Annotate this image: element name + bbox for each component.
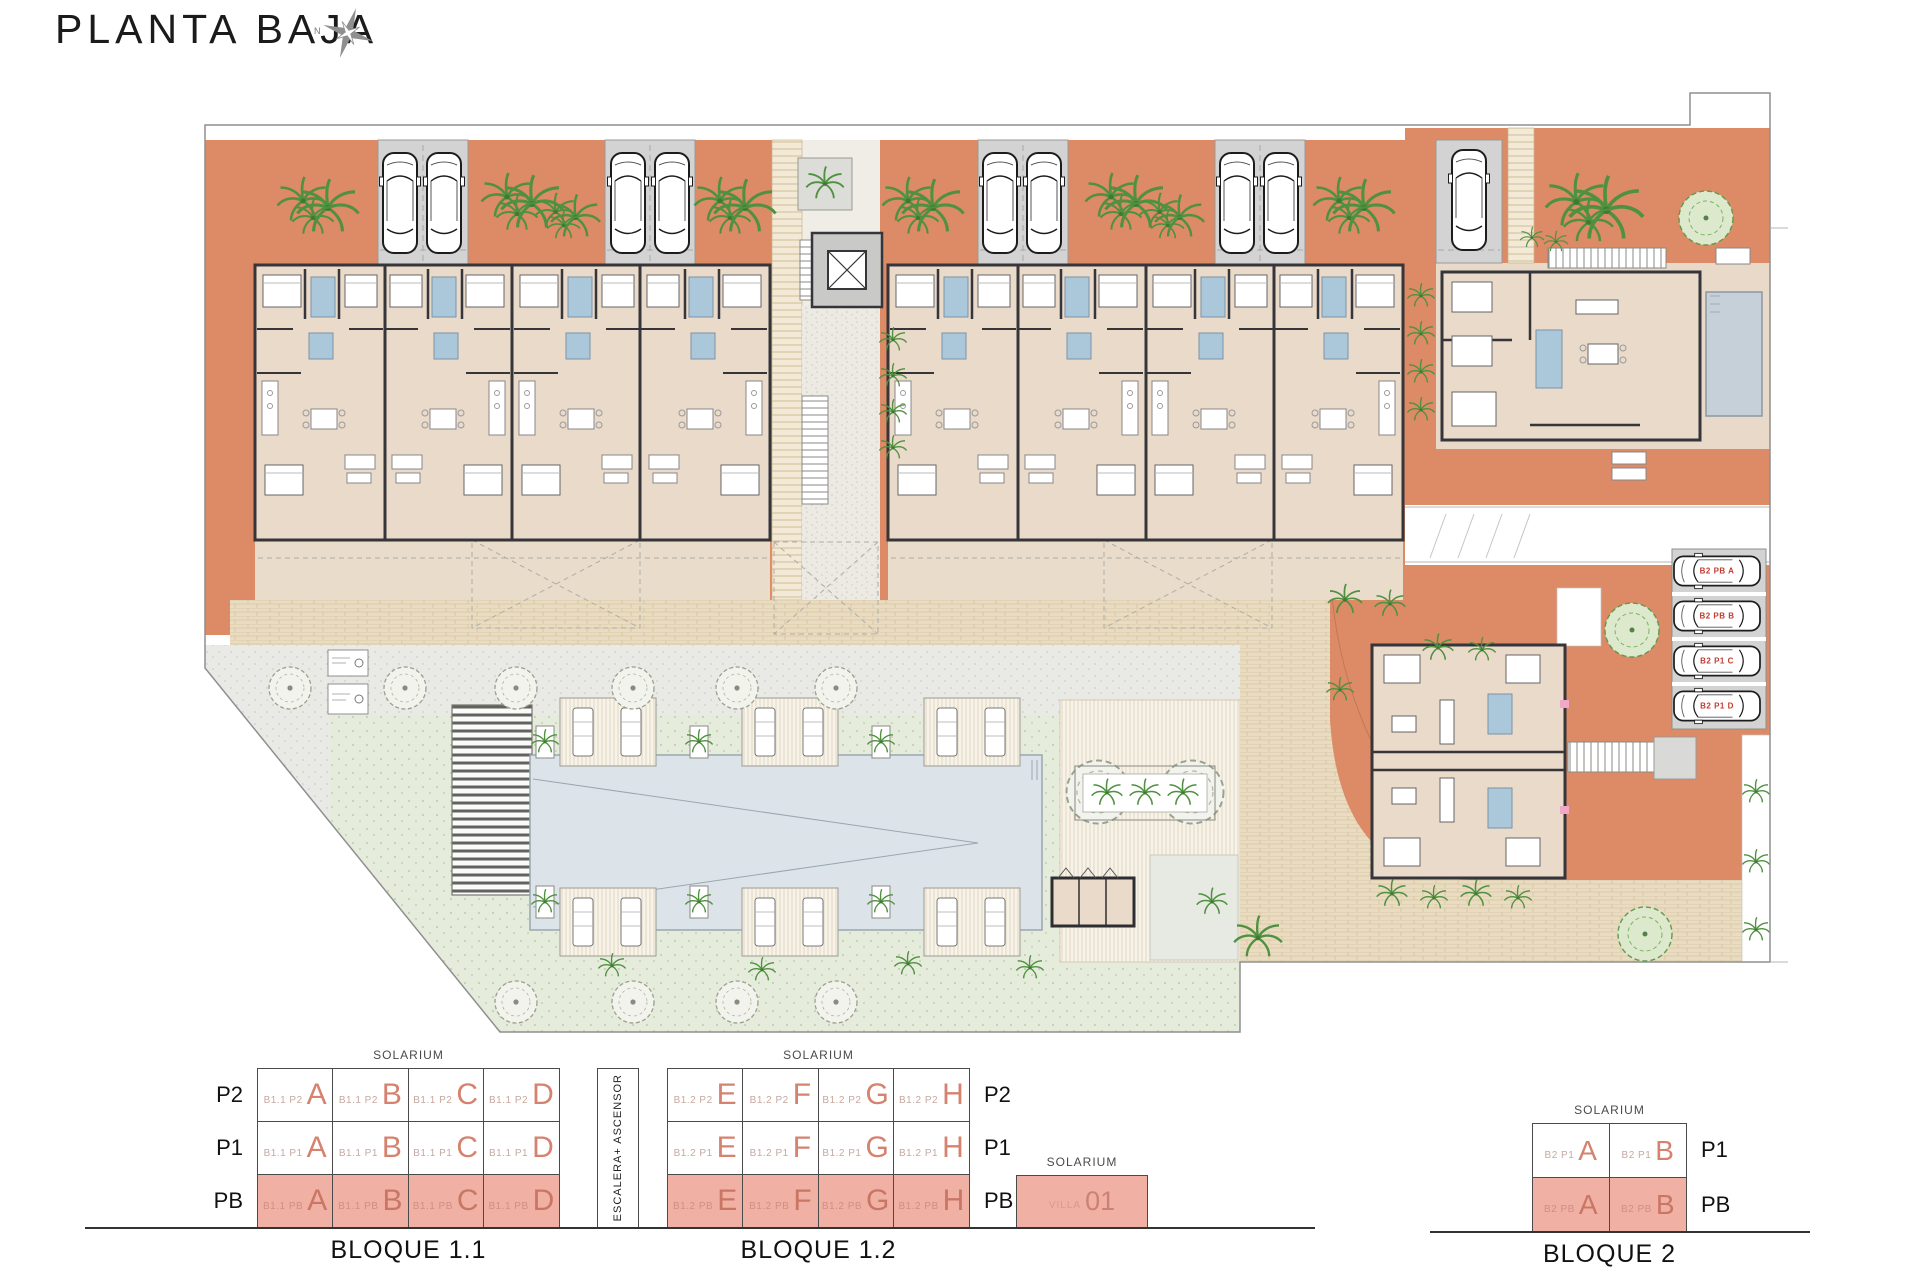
bloque12-grid: B1.2 P2EB1.2 P2FB1.2 P2GB1.2 P2HB1.2 P1E… — [667, 1068, 970, 1228]
bloque2-floor-label-PB: PB — [1701, 1192, 1747, 1218]
unit-code: B1.1 P2 — [264, 1095, 303, 1106]
unit-code: B1.1 PB — [263, 1201, 303, 1212]
unit-letter: A — [1578, 1135, 1597, 1167]
bloque11-floor-label-P2: P2 — [197, 1082, 243, 1108]
unit-code: B1.2 P2 — [899, 1095, 938, 1106]
unit-cell-bloque12-P1-G: B1.2 P1G — [819, 1122, 894, 1175]
unit-code: B1.2 PB — [898, 1201, 938, 1212]
unit-letter: D — [533, 1184, 555, 1218]
unit-cell-bloque12-P1-H: B1.2 P1H — [894, 1122, 969, 1175]
unit-code: B1.1 P1 — [264, 1148, 303, 1159]
unit-cell-bloque12-P2-G: B1.2 P2G — [819, 1069, 894, 1122]
unit-code: B2 PB — [1621, 1204, 1652, 1215]
unit-letter: B — [1656, 1189, 1675, 1221]
plan-canvas: PLANTA BAJA N — [0, 0, 1920, 1280]
bloque2-floor-label-P1: P1 — [1701, 1137, 1747, 1163]
unit-cell-bloque11-PB-D: B1.1 PBD — [484, 1175, 559, 1227]
unit-cell-bloque11-P1-D: B1.1 P1D — [484, 1122, 559, 1175]
unit-code: B1.2 P2 — [750, 1095, 789, 1106]
unit-code: B1.1 P1 — [339, 1148, 378, 1159]
unit-code: B1.1 P1 — [413, 1148, 452, 1159]
unit-letter: F — [793, 1078, 811, 1112]
unit-letter: B — [382, 1184, 402, 1218]
wc-building — [1052, 878, 1134, 926]
unit-letter: E — [717, 1131, 737, 1165]
unit-cell-bloque12-P1-F: B1.2 P1F — [743, 1122, 818, 1175]
unit-letter: A — [1579, 1189, 1598, 1221]
unit-letter: A — [307, 1078, 327, 1112]
unit-code: B1.1 P2 — [489, 1095, 528, 1106]
building-bloque12 — [888, 265, 1403, 540]
unit-letter: C — [457, 1184, 479, 1218]
unit-letter: D — [532, 1078, 554, 1112]
villa-number: 01 — [1085, 1186, 1115, 1217]
unit-code: B1.2 P1 — [674, 1148, 713, 1159]
unit-code: B1.2 P1 — [899, 1148, 938, 1159]
unit-cell-bloque12-PB-E: B1.2 PBE — [668, 1175, 743, 1227]
unit-cell-bloque2-PB-A: B2 PBA — [1533, 1178, 1610, 1231]
pergola — [452, 705, 532, 895]
unit-code: B1.2 P1 — [750, 1148, 789, 1159]
bloque2-title: BLOQUE 2 — [1543, 1240, 1676, 1269]
unit-cell-bloque12-P1-E: B1.2 P1E — [668, 1122, 743, 1175]
bloque12-floor-label-P1: P1 — [984, 1135, 1030, 1161]
unit-letter: G — [866, 1078, 889, 1112]
ground-line-1 — [1430, 1231, 1810, 1233]
unit-cell-bloque11-P1-C: B1.1 P1C — [409, 1122, 484, 1175]
unit-cell-bloque11-P2-D: B1.1 P2D — [484, 1069, 559, 1122]
villa-solarium-label: SOLARIUM — [1047, 1155, 1118, 1169]
unit-code: B1.2 P2 — [674, 1095, 713, 1106]
unit-letter: H — [942, 1131, 964, 1165]
unit-letter: C — [456, 1131, 478, 1165]
compass-icon — [315, 0, 381, 66]
unit-cell-bloque11-P2-B: B1.1 P2B — [333, 1069, 408, 1122]
unit-letter: B — [382, 1131, 402, 1165]
unit-code: B1.2 PB — [749, 1201, 789, 1212]
unit-code: B1.1 PB — [488, 1201, 528, 1212]
unit-cell-bloque12-P2-H: B1.2 P2H — [894, 1069, 969, 1122]
long-stair — [802, 396, 828, 504]
unit-code: B1.1 P2 — [413, 1095, 452, 1106]
unit-letter: A — [307, 1131, 327, 1165]
unit-letter: H — [943, 1184, 965, 1218]
unit-letter: C — [456, 1078, 478, 1112]
unit-cell-bloque2-P1-A: B2 P1A — [1533, 1124, 1610, 1178]
bloque12-floor-label-P2: P2 — [984, 1082, 1030, 1108]
bloque11-floor-label-P1: P1 — [197, 1135, 243, 1161]
parking-space-label-2: B2 P1 C — [1700, 657, 1734, 666]
unit-letter: G — [866, 1184, 889, 1218]
parking-space-label-0: B2 PB A — [1700, 567, 1735, 576]
unit-letter: F — [793, 1131, 811, 1165]
unit-cell-bloque12-P2-E: B1.2 P2E — [668, 1069, 743, 1122]
unit-letter: A — [307, 1184, 327, 1218]
ground-line-0 — [85, 1227, 1315, 1229]
unit-code: B1.2 P1 — [822, 1148, 861, 1159]
unit-code: B1.1 PB — [338, 1201, 378, 1212]
unit-cell-bloque11-P2-A: B1.1 P2A — [258, 1069, 333, 1122]
escalera-box: ESCALERA+ ASCENSOR — [597, 1068, 639, 1228]
bloque2-solarium-label: SOLARIUM — [1574, 1103, 1645, 1117]
unit-letter: F — [793, 1184, 811, 1218]
unit-letter: E — [717, 1184, 737, 1218]
unit-code: B2 P1 — [1545, 1150, 1575, 1161]
unit-cell-bloque12-PB-F: B1.2 PBF — [743, 1175, 818, 1227]
unit-letter: H — [942, 1078, 964, 1112]
unit-cell-bloque11-PB-C: B1.1 PBC — [409, 1175, 484, 1227]
unit-letter: B — [1655, 1135, 1674, 1167]
unit-code: B1.1 P1 — [489, 1148, 528, 1159]
escalera-label: ESCALERA+ ASCENSOR — [612, 1074, 624, 1221]
building-bloque11 — [255, 265, 770, 540]
unit-cell-bloque11-P1-B: B1.1 P1B — [333, 1122, 408, 1175]
unit-cell-bloque12-PB-H: B1.2 PBH — [894, 1175, 969, 1227]
unit-letter: E — [717, 1078, 737, 1112]
unit-code: B2 PB — [1544, 1204, 1575, 1215]
unit-letter: D — [532, 1131, 554, 1165]
bloque2-grid: B2 P1AB2 P1BB2 PBAB2 PBB — [1532, 1123, 1687, 1232]
unit-cell-bloque11-P2-C: B1.1 P2C — [409, 1069, 484, 1122]
bloque12-solarium-label: SOLARIUM — [783, 1048, 854, 1062]
unit-code: B1.1 P2 — [339, 1095, 378, 1106]
unit-letter: B — [382, 1078, 402, 1112]
unit-code: B1.2 P2 — [822, 1095, 861, 1106]
villa-code: VILLA — [1049, 1200, 1081, 1211]
bloque12-title: BLOQUE 1.2 — [741, 1236, 897, 1265]
villa-pool — [1706, 292, 1762, 416]
parking-space-label-3: B2 P1 D — [1700, 702, 1734, 711]
unit-cell-bloque12-P2-F: B1.2 P2F — [743, 1069, 818, 1122]
unit-code: B1.2 PB — [673, 1201, 713, 1212]
bloque11-floor-label-PB: PB — [197, 1188, 243, 1214]
unit-cell-bloque11-PB-A: B1.1 PBA — [258, 1175, 333, 1227]
bloque11-title: BLOQUE 1.1 — [331, 1236, 487, 1265]
bloque11-solarium-label: SOLARIUM — [373, 1048, 444, 1062]
unit-cell-bloque11-P1-A: B1.1 P1A — [258, 1122, 333, 1175]
unit-letter: G — [866, 1131, 889, 1165]
unit-code: B1.1 PB — [413, 1201, 453, 1212]
unit-cell-bloque12-PB-G: B1.2 PBG — [819, 1175, 894, 1227]
parking-space-label-1: B2 PB B — [1699, 612, 1734, 621]
unit-cell-bloque2-P1-B: B2 P1B — [1610, 1124, 1687, 1178]
unit-cell-bloque2-PB-B: B2 PBB — [1610, 1178, 1687, 1231]
unit-code: B2 P1 — [1622, 1150, 1652, 1161]
unit-code: B1.2 PB — [822, 1201, 862, 1212]
villa-box: VILLA01 — [1016, 1175, 1148, 1228]
unit-cell-bloque11-PB-B: B1.1 PBB — [333, 1175, 408, 1227]
bloque11-grid: B1.1 P2AB1.1 P2BB1.1 P2CB1.1 P2DB1.1 P1A… — [257, 1068, 560, 1228]
